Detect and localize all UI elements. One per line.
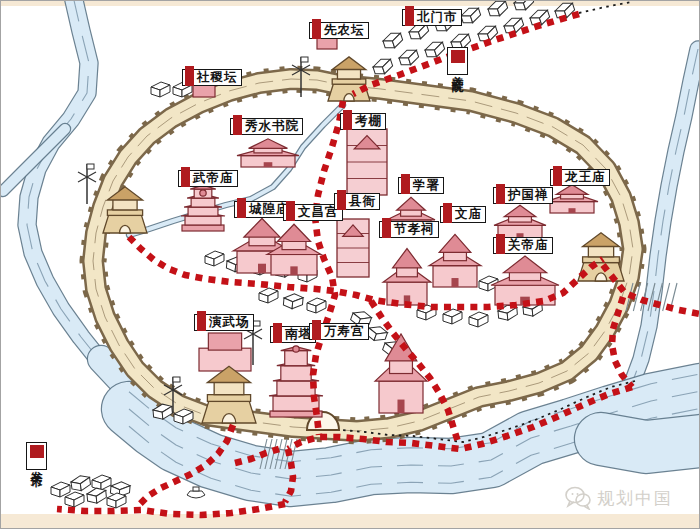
map-label-kaopeng: 考棚 (340, 113, 386, 130)
route-dotted-red (57, 504, 285, 515)
map-label-huguochan: 护国禅 (493, 187, 553, 204)
house (443, 309, 462, 324)
house (307, 298, 326, 313)
map-label-xueshu: 学署 (398, 177, 444, 194)
map-label-guandimiao: 关帝庙 (493, 237, 553, 254)
flag-pole (78, 164, 96, 204)
platform-building (199, 333, 251, 371)
flag (301, 57, 308, 62)
temple-door (451, 278, 458, 287)
map-label-xiannongtan: 先农坛 (309, 22, 369, 39)
platform-stage (208, 333, 241, 350)
label-text: 南塔 (285, 326, 312, 343)
pagoda-building (181, 185, 225, 231)
gate-tower (202, 366, 256, 423)
house (87, 487, 107, 504)
label-red-block (451, 50, 465, 63)
pagoda-tier (188, 207, 218, 216)
compound-building (337, 219, 369, 277)
temple-top-roof (556, 185, 588, 195)
house (92, 475, 111, 490)
house (107, 493, 126, 508)
label-text: 先农坛 (324, 22, 365, 39)
house (512, 1, 535, 13)
label-red-block (237, 198, 246, 218)
label-text: 武帝庙 (193, 170, 234, 187)
map-label-wudimiao: 武帝庙 (178, 170, 238, 187)
map-label-xianya: 县衙 (334, 193, 380, 210)
label-red-block (443, 203, 452, 223)
map-label-wenmiao: 文庙 (440, 206, 486, 223)
label-red-block (273, 323, 282, 343)
label-red-block (233, 115, 242, 135)
house (70, 474, 91, 491)
temple-door (264, 162, 273, 167)
label-red-block (343, 110, 352, 130)
boat-cabin (193, 487, 199, 491)
house (459, 5, 482, 25)
label-text: 养济院 (451, 66, 465, 72)
label-text: 文庙 (455, 206, 482, 223)
altar-building (193, 85, 215, 97)
label-text: 文昌宫 (298, 204, 339, 221)
temple-top-roof (393, 249, 422, 268)
map-label-yangjiyuan: 养济院 (447, 47, 468, 75)
compound-building (347, 129, 387, 195)
page-strip-bottom (1, 514, 700, 529)
page-strip-top (1, 1, 700, 6)
tower-roof (583, 233, 620, 247)
tower-deck (207, 395, 250, 402)
platform-base (199, 348, 251, 371)
label-text: 北门市 (417, 9, 458, 26)
gate-tower (328, 57, 370, 101)
house (259, 288, 278, 303)
boat-hull (187, 491, 205, 498)
pagoda-finial (200, 190, 206, 196)
historic-city-map-canvas (1, 1, 700, 529)
label-red-block (312, 320, 321, 340)
map-label-yanwuchang: 演武场 (194, 314, 254, 331)
temple-top-roof (504, 205, 536, 217)
map-label-beimenshi: 北门市 (402, 9, 462, 26)
altar (193, 85, 215, 97)
label-red-block (181, 167, 190, 187)
tower-deck (107, 210, 142, 216)
label-red-block (30, 445, 44, 458)
temple-top-roof (244, 218, 280, 237)
temple-top-roof (439, 234, 471, 252)
house (283, 293, 303, 310)
label-red-block (553, 166, 562, 186)
label-red-block (401, 174, 410, 194)
temple-door (290, 266, 297, 275)
pagoda-tier (285, 351, 308, 366)
temple-building (237, 139, 299, 167)
pagoda-finial (293, 346, 299, 352)
map-label-shejitan: 社稷坛 (182, 69, 242, 86)
label-red-block (405, 6, 414, 26)
label-red-block (496, 184, 505, 204)
map-label-wanshougong: 万寿宫 (309, 323, 369, 340)
river-body (601, 439, 700, 447)
label-red-block (197, 311, 206, 331)
label-text: 万寿宫 (324, 323, 365, 340)
label-text: 护国禅 (508, 187, 549, 204)
label-text: 县衙 (349, 193, 376, 210)
watermark-text: 规划中国 (597, 487, 673, 510)
temple-top-roof (397, 197, 426, 210)
house (397, 47, 420, 67)
pagoda-tier (277, 381, 315, 396)
watermark: 规划中国 (565, 486, 673, 510)
map-label-faguanshi: 发关市 (26, 442, 47, 470)
pagoda-tier (281, 366, 311, 381)
flag (87, 164, 94, 169)
flag (173, 377, 180, 382)
house (423, 39, 446, 59)
river-body (631, 49, 698, 386)
label-text: 节孝祠 (394, 221, 435, 238)
temple-building (429, 234, 481, 287)
temple-top-roof (503, 256, 546, 273)
river (601, 439, 700, 447)
house (205, 251, 224, 266)
wechat-icon (565, 486, 591, 510)
pagoda-tier (191, 198, 215, 207)
house (469, 312, 488, 327)
temple-building (546, 185, 598, 213)
label-text: 演武场 (209, 314, 250, 331)
house (371, 56, 394, 76)
map-label-jiexiaoci: 节孝祠 (379, 221, 439, 238)
house (381, 30, 404, 50)
tower-gate-arch (344, 94, 355, 101)
label-text: 学署 (413, 177, 440, 194)
label-text: 社稷坛 (197, 69, 238, 86)
temple-building (383, 249, 431, 305)
historic-city-map-page: 北门市先农坛养济院社稷坛秀水书院考棚武帝庙学署龙王庙护国禅城隍庙文昌宫县衙文庙节… (0, 0, 700, 529)
tower-pavilion (214, 381, 244, 395)
house (151, 82, 170, 97)
temple-door (397, 400, 404, 413)
temple-door (568, 208, 575, 213)
temple-top-roof (249, 139, 288, 149)
label-text: 关帝庙 (508, 237, 549, 254)
label-text: 龙王庙 (565, 169, 606, 186)
map-label-xiushuishuyuan: 秀水书院 (230, 118, 303, 135)
river (631, 49, 698, 386)
label-red-block (337, 190, 346, 210)
flag (253, 321, 260, 326)
pagoda-platform (182, 225, 224, 231)
house (65, 492, 84, 507)
house (51, 482, 70, 497)
label-red-block (382, 218, 391, 238)
tower-deck (332, 79, 366, 84)
label-text: 发关市 (30, 461, 44, 467)
temple-door (258, 264, 266, 273)
tower-roof (332, 57, 366, 70)
pagoda-tier (185, 216, 221, 225)
label-text: 秀水书院 (245, 118, 299, 135)
label-red-block (286, 201, 295, 221)
map-label-longwangmiao: 龙王庙 (550, 169, 610, 186)
temple-top-roof (277, 224, 310, 241)
label-red-block (185, 66, 194, 86)
boat (187, 487, 205, 498)
label-text: 考棚 (355, 113, 382, 130)
label-red-block (312, 19, 321, 39)
label-red-block (496, 234, 505, 254)
